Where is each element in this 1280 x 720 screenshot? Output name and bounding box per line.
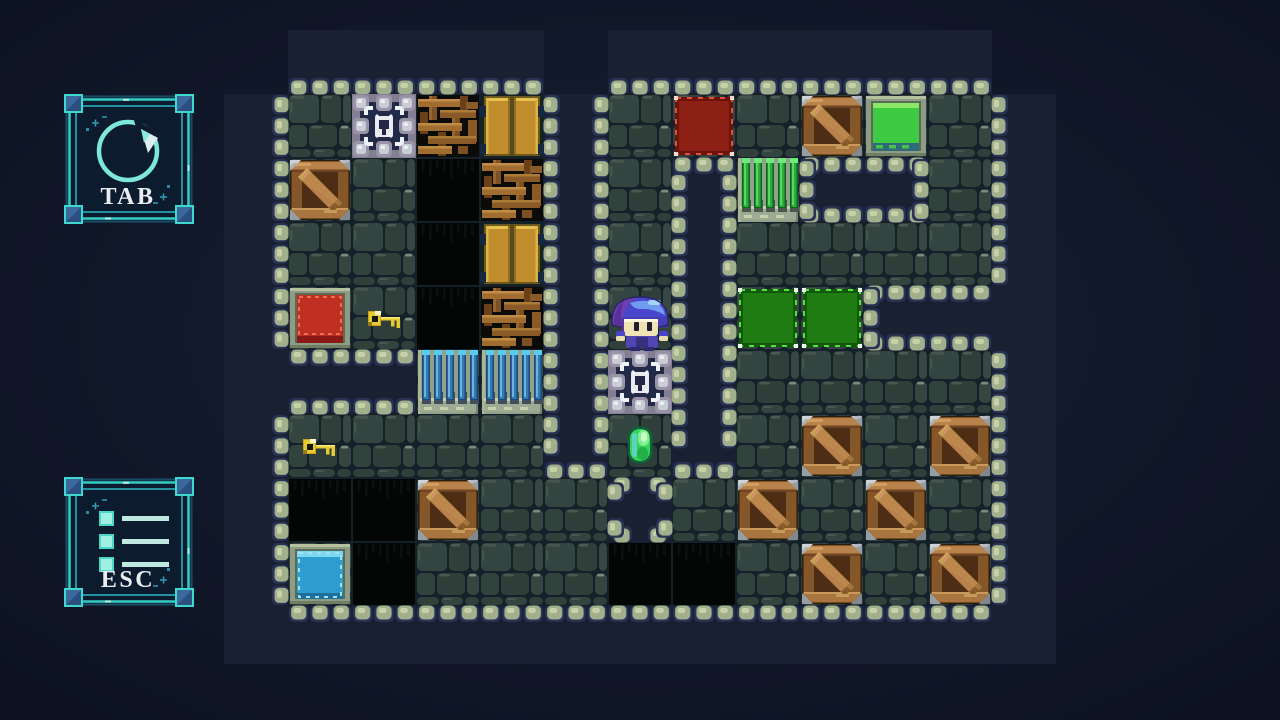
svg-text:ESC: ESC (101, 567, 155, 593)
svg-text:TAB: TAB (100, 184, 155, 210)
